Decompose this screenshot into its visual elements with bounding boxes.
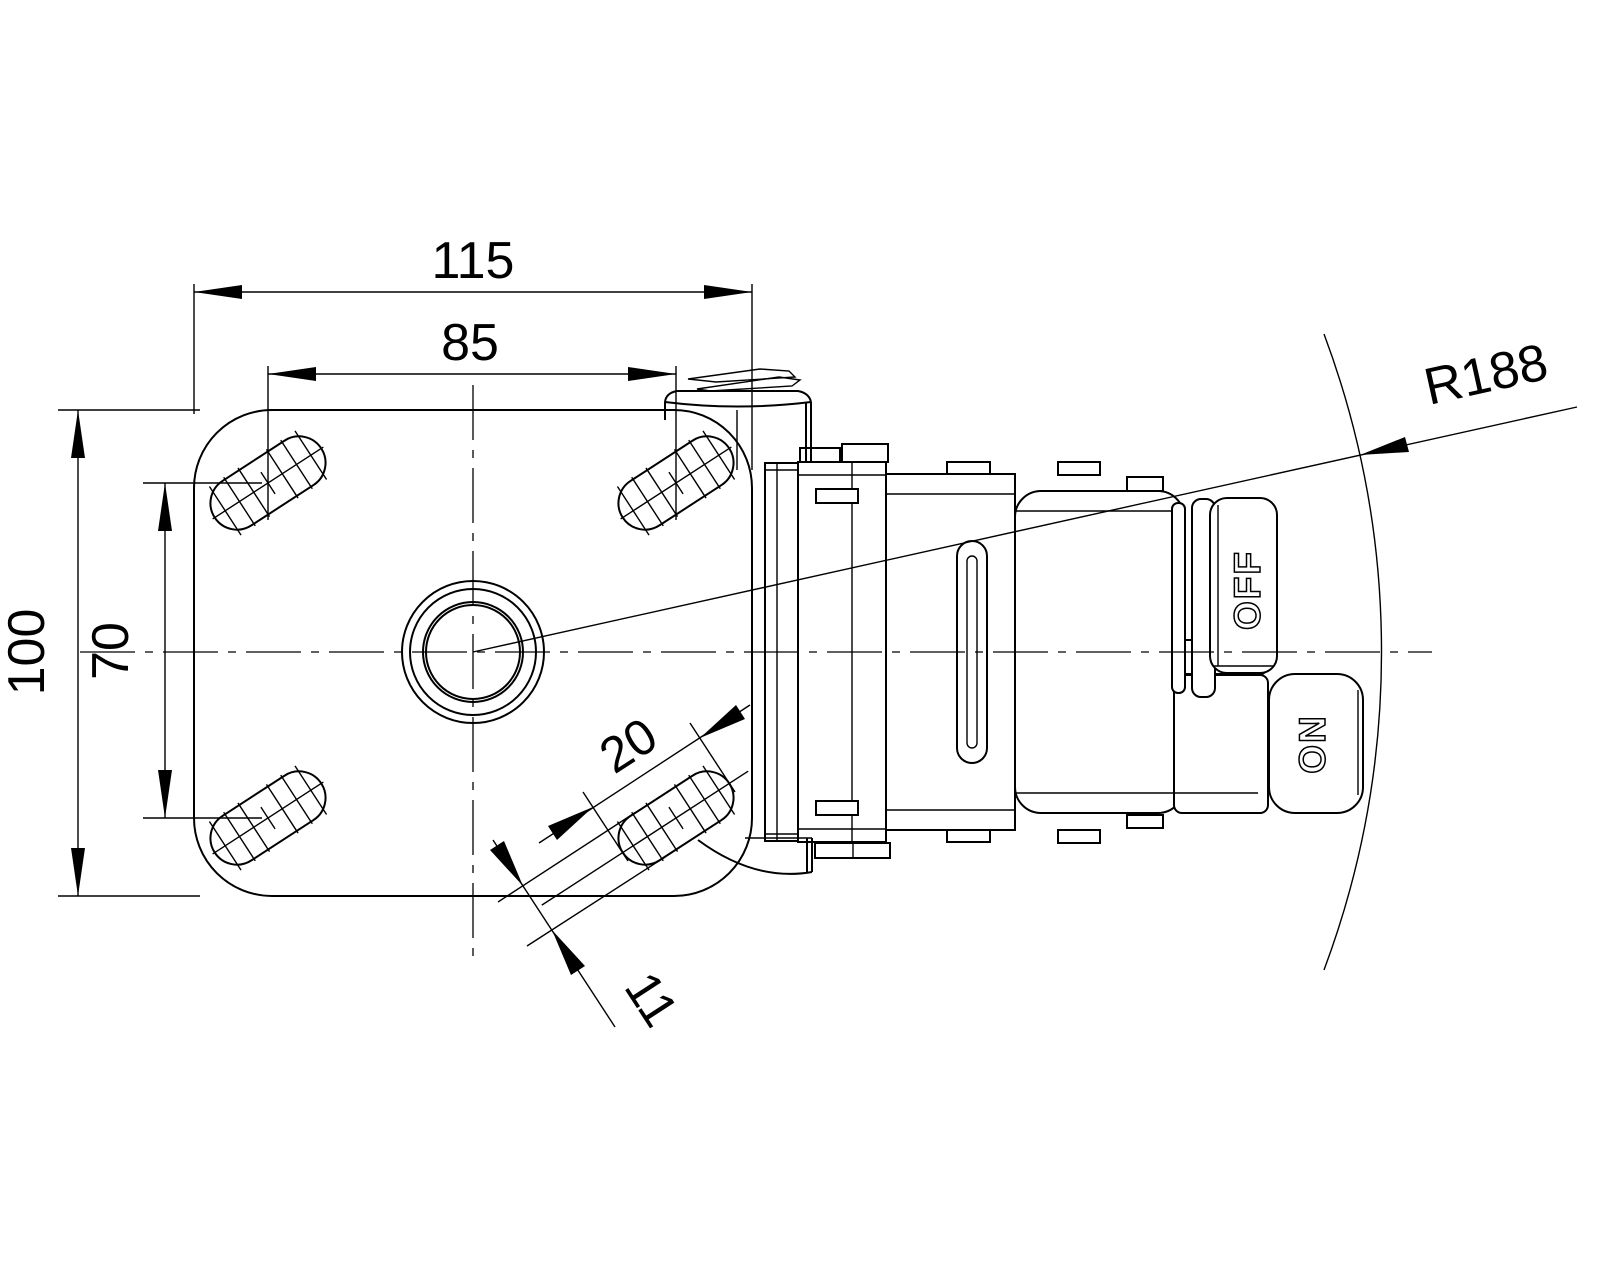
housing-tab: [1058, 830, 1100, 843]
housing-tab: [1127, 815, 1163, 828]
caster-drawing-svg: 115 85 100 70 20 11: [0, 0, 1600, 1280]
panel-tab: [947, 462, 990, 474]
panel-tab: [947, 830, 990, 842]
housing-tab: [1127, 477, 1163, 491]
pedal-hinge-strip: [1172, 503, 1185, 693]
fork-tab: [842, 444, 888, 462]
pedal-on-label: ON: [1292, 714, 1333, 774]
dim-85-label: 85: [441, 314, 499, 372]
dim-11-label: 11: [614, 962, 689, 1036]
brake-clip: [816, 801, 858, 815]
technical-drawing-canvas: 115 85 100 70 20 11: [0, 0, 1600, 1280]
pedal-off-label: OFF: [1227, 550, 1268, 630]
dim-70-label: 70: [82, 622, 140, 680]
brake-clip: [816, 489, 858, 503]
housing-tab: [1058, 462, 1100, 475]
dim-100-label: 100: [0, 609, 56, 696]
dim-r188-label: R188: [1419, 333, 1553, 417]
dim-115-label: 115: [432, 232, 515, 290]
